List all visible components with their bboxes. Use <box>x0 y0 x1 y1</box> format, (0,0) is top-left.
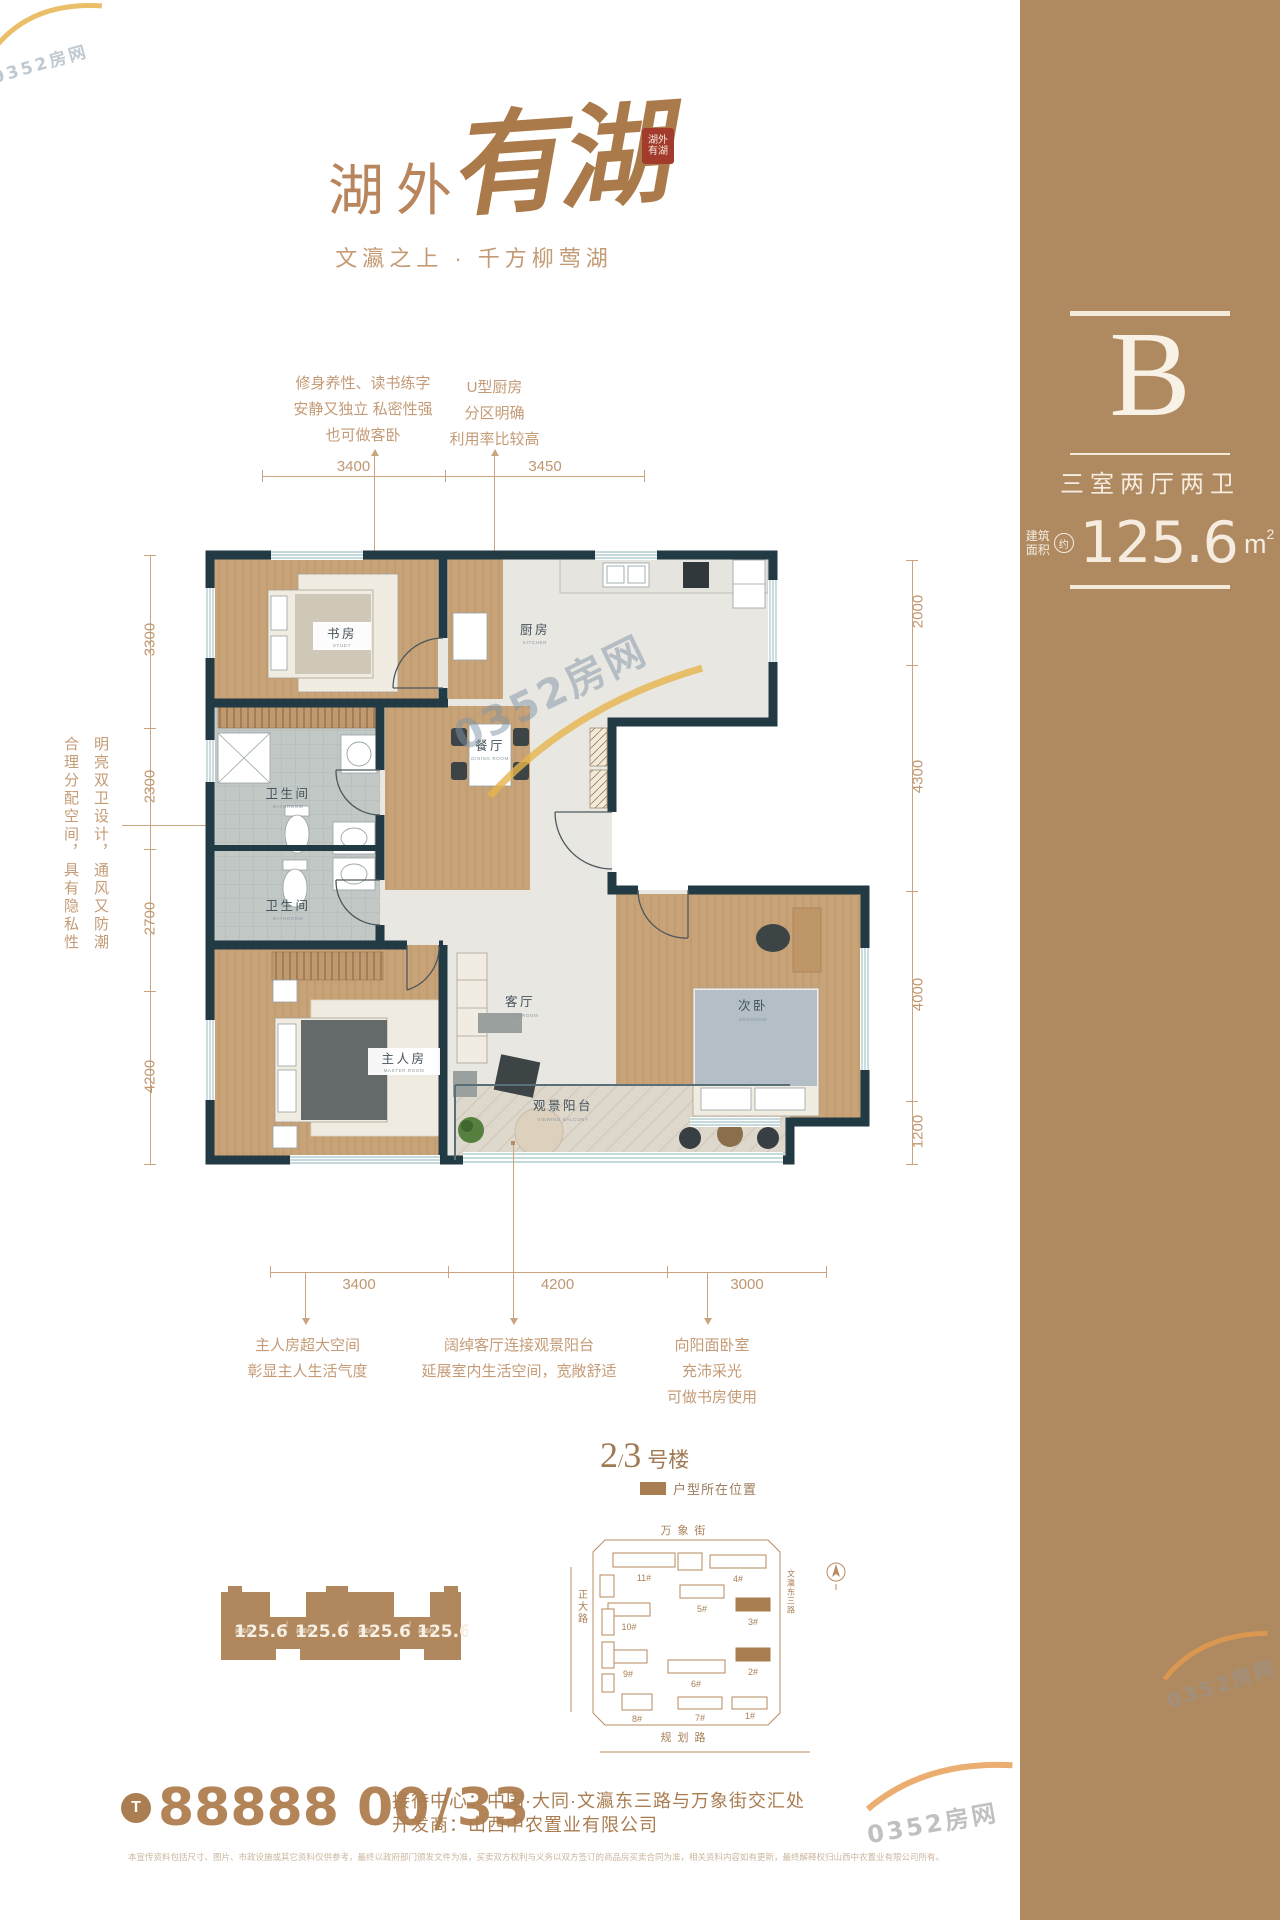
svg-text:㎡: ㎡ <box>464 1621 468 1629</box>
logo-text: 湖外 <box>328 146 464 227</box>
room-label-dining: 餐厅 <box>475 738 505 753</box>
pillow <box>271 596 287 630</box>
dining-chair <box>451 762 467 780</box>
room-label-kitchen: 厨房 <box>520 622 550 637</box>
washing-machine <box>341 735 377 773</box>
tagline: 文瀛之上 · 千方柳莺湖 <box>328 241 620 273</box>
footprint-unit-label: 建面约 125.6 ㎡ <box>417 1621 468 1642</box>
dim-bottom: 3400 4200 3000 <box>270 1266 827 1292</box>
building <box>678 1553 702 1570</box>
room-label-bath-lower: 卫生间 <box>265 899 310 913</box>
room-sub-bath-lower: BATHROOM <box>273 916 303 921</box>
room-sub-balcony: VIEWING BALCONY <box>537 1117 588 1122</box>
retail-strip <box>602 1674 614 1692</box>
room-sub-living: LIVING ROOM <box>502 1013 539 1018</box>
developer-line: 开发商：山西中农置业有限公司 <box>392 1813 805 1837</box>
building <box>622 1694 652 1710</box>
svg-text:8#: 8# <box>632 1714 642 1724</box>
room-sub-bath-upper: BATHROOM <box>273 804 303 809</box>
dining-chair <box>451 728 467 746</box>
building-highlight <box>736 1598 770 1611</box>
room-label-balcony: 观景阳台 <box>533 1098 593 1113</box>
street-left: 正大路 <box>576 1589 588 1625</box>
panel-rule-bottom <box>1070 585 1230 589</box>
pillow <box>271 636 287 670</box>
compass-icon <box>827 1563 845 1590</box>
toilet-tank <box>283 860 307 870</box>
wall <box>612 872 638 890</box>
poster-page: 湖外 有湖 湖外有湖 文瀛之上 · 千方柳莺湖 B 三室两厅两卫 建筑 面积 约… <box>0 0 1280 1920</box>
entry-cabinet <box>590 770 607 808</box>
pillow <box>755 1088 805 1110</box>
building <box>613 1553 675 1567</box>
callout-master-text: 主人房超大空间 彰显主人生活气度 <box>205 1333 410 1385</box>
area-label: 建筑 面积 <box>1026 529 1050 557</box>
contact-address: 接待中心：中国·大同·文瀛东三路与万象街交汇处 开发商：山西中农置业有限公司 <box>392 1789 805 1837</box>
balcony-rug <box>515 1108 563 1156</box>
nightstand <box>273 1126 297 1148</box>
room-sub-kitchen: KITCHEN <box>523 640 547 645</box>
vanity <box>333 858 375 890</box>
svg-text:125.6: 125.6 <box>234 1622 288 1642</box>
room-label-study: 书房 <box>327 626 357 641</box>
unit-panel: B 三室两厅两卫 建筑 面积 约 125.6 m2 <box>1020 0 1280 1920</box>
watermark: 0352房网 <box>856 1745 1027 1851</box>
footprint-unit-label: 建面约 125.6 ㎡ <box>357 1621 411 1642</box>
building <box>610 1650 647 1663</box>
pillow <box>278 1024 296 1066</box>
svg-text:125.6: 125.6 <box>357 1622 411 1642</box>
kitchen-island <box>453 613 487 660</box>
floor-plan: 书房 STUDY 厨房 KITCHEN 餐厅 DINING ROOM 卫生间 B… <box>183 548 883 1168</box>
arrow-down-icon <box>510 1318 518 1325</box>
legend-swatch <box>640 1482 666 1495</box>
building <box>732 1697 767 1709</box>
logo-calligraphy: 有湖 <box>443 63 670 240</box>
pillow <box>278 1070 296 1112</box>
plant <box>461 1120 473 1132</box>
callout-living-line <box>513 1145 514 1318</box>
seal-text: 湖外有湖 <box>646 135 670 157</box>
phone-icon: T <box>121 1793 151 1823</box>
callout-kitchen-text: U型厨房 分区明确 利用率比较高 <box>427 375 562 453</box>
nightstand <box>273 980 297 1002</box>
seal-stamp-icon: 湖外有湖 <box>642 128 674 164</box>
room-label-bath-upper: 卫生间 <box>265 787 310 801</box>
svg-text:㎡: ㎡ <box>343 1621 349 1629</box>
callout-bathrooms-text: 合理分配空间，具有隐私性 明亮双卫设计，通风又防潮 <box>60 736 111 952</box>
site-plan: 万象街 规划路 正大路 文瀛东三路 11# 4# 5# 3# 10# 9# 6#… <box>555 1522 855 1767</box>
dim-top: 3400 3450 <box>262 470 645 490</box>
entry-cabinet <box>590 728 607 766</box>
planter-pot <box>757 1127 779 1149</box>
retail-strip <box>600 1575 614 1597</box>
unit-area-row: 建筑 面积 约 125.6 m2 <box>1020 510 1280 576</box>
room-sub-study: STUDY <box>333 643 351 648</box>
svg-text:7#: 7# <box>695 1713 705 1723</box>
dim-left: 3300 2300 2700 4200 <box>144 555 158 1165</box>
desk-chair <box>756 924 790 952</box>
street-top: 万象街 <box>661 1523 712 1537</box>
unit-layout-name: 三室两厅两卫 <box>1020 464 1280 499</box>
legend-unit-location: 户型所在位置 <box>640 1479 757 1498</box>
callout-living-text: 阔绰客厅连接观景阳台 延展室内生活空间，宽敞舒适 <box>388 1333 650 1385</box>
building <box>668 1660 725 1673</box>
watermark: 0352房网 <box>0 0 121 88</box>
svg-text:9#: 9# <box>623 1669 633 1679</box>
svg-text:㎡: ㎡ <box>282 1621 288 1629</box>
room-label-bedroom: 次卧 <box>738 999 768 1013</box>
svg-text:125.6: 125.6 <box>295 1622 349 1642</box>
svg-text:11#: 11# <box>637 1573 651 1583</box>
wardrobe <box>272 952 383 980</box>
callout-bedroom-text: 向阳面卧室 充沛采光 可做书房使用 <box>627 1333 797 1411</box>
unit-letter: B <box>1020 308 1280 442</box>
building-footprint: 建面约 125.6 ㎡ 建面约 125.6 ㎡ 建面约 125.6 ㎡ 建面约 … <box>218 1583 468 1668</box>
arrow-down-icon <box>704 1318 712 1325</box>
retail-strip <box>602 1642 614 1668</box>
stove <box>683 562 709 588</box>
dining-chair <box>513 762 529 780</box>
callout-master-line <box>305 1272 306 1318</box>
svg-text:6#: 6# <box>691 1679 701 1689</box>
arrow-up-icon <box>491 449 499 456</box>
svg-text:125.6: 125.6 <box>417 1622 468 1642</box>
svg-text:5#: 5# <box>697 1604 707 1614</box>
svg-text:10#: 10# <box>621 1622 636 1632</box>
building <box>678 1697 722 1709</box>
street-bottom: 规划路 <box>661 1730 712 1744</box>
dining-chair <box>513 728 529 746</box>
panel-rule-mid <box>1070 453 1230 455</box>
room-sub-master: MASTER ROOM <box>384 1068 425 1073</box>
swoosh-icon <box>864 1758 1016 1809</box>
area-value: 125.6 <box>1080 510 1238 576</box>
room-label-living: 客厅 <box>505 994 535 1009</box>
area-unit: m2 <box>1244 526 1274 560</box>
svg-text:3#: 3# <box>748 1617 758 1627</box>
svg-text:2#: 2# <box>748 1667 758 1677</box>
building <box>710 1555 766 1568</box>
footprint-unit-label: 建面约 125.6 ㎡ <box>234 1621 288 1642</box>
desk <box>793 908 821 972</box>
footprint-unit-label: 建面约 125.6 ㎡ <box>295 1621 349 1642</box>
reception-line: 接待中心：中国·大同·文瀛东三路与万象街交汇处 <box>392 1789 805 1813</box>
building <box>680 1585 724 1598</box>
arrow-down-icon <box>302 1318 310 1325</box>
swoosh-icon <box>0 0 106 53</box>
closet <box>218 706 376 728</box>
dining-table <box>469 724 511 786</box>
building-title: 2/3号楼 <box>600 1434 820 1476</box>
area-approx-badge: 约 <box>1054 533 1074 553</box>
disclaimer: 本宣传资料包括尺寸、图片、市政设施或其它资料仅供参考，最终以政府部门颁发文件为准… <box>128 1851 970 1863</box>
room-label-master: 主人房 <box>381 1051 426 1066</box>
svg-text:4#: 4# <box>733 1574 743 1584</box>
pillow <box>701 1088 751 1110</box>
svg-text:㎡: ㎡ <box>405 1621 411 1629</box>
retail-strip <box>602 1609 614 1635</box>
svg-text:1#: 1# <box>745 1711 755 1721</box>
room-sub-bedroom: BEDROOM <box>739 1017 766 1022</box>
callout-bedroom-line <box>707 1272 708 1318</box>
dim-right: 2000 4300 4000 1200 <box>906 560 920 1165</box>
callout-dot <box>511 1141 515 1145</box>
street-right: 文瀛东三路 <box>787 1569 796 1615</box>
building-highlight <box>736 1648 770 1661</box>
arrow-up-icon <box>371 449 379 456</box>
planter-pot <box>679 1127 701 1149</box>
room-sub-dining: DINING ROOM <box>471 756 509 761</box>
